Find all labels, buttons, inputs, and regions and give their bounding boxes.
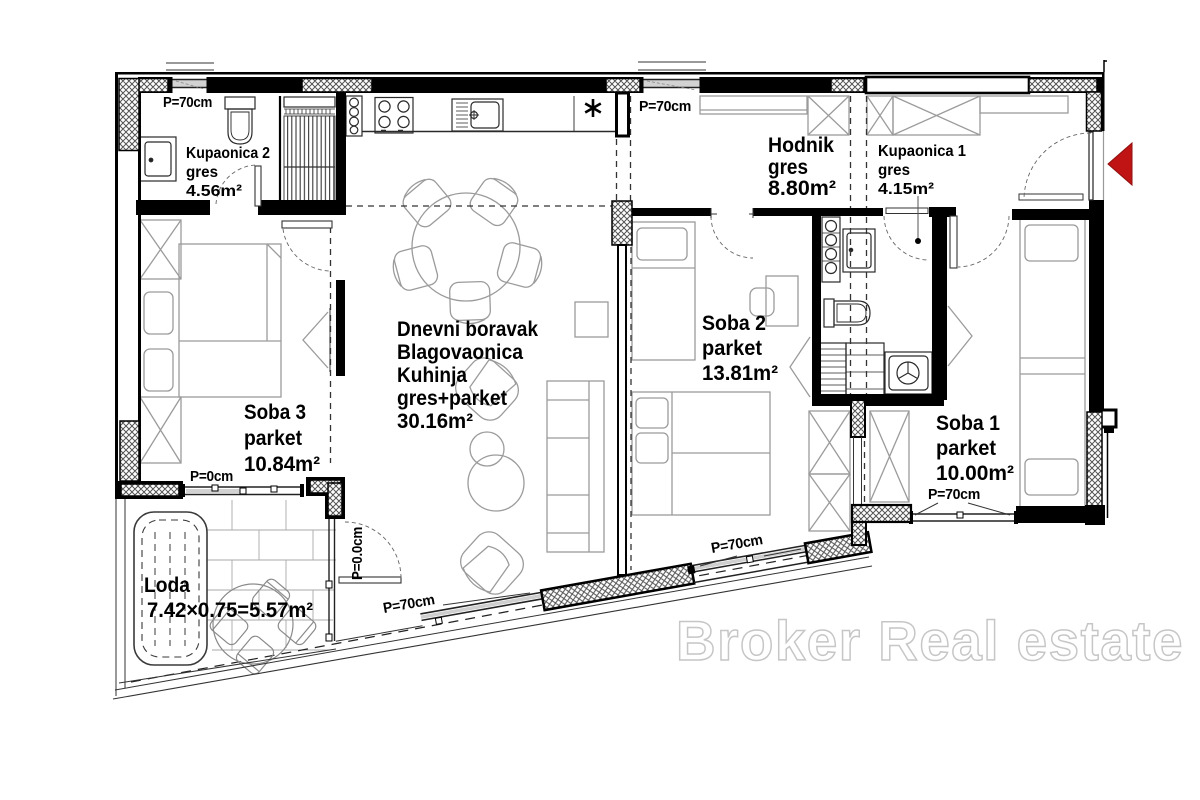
svg-text:parket: parket: [702, 337, 762, 360]
svg-text:Soba 2: Soba 2: [702, 312, 766, 335]
svg-text:10.00m²: 10.00m²: [936, 462, 1014, 485]
svg-text:P=70cm: P=70cm: [163, 95, 212, 111]
svg-text:parket: parket: [936, 437, 996, 460]
svg-text:7.42×0.75=5.57m²: 7.42×0.75=5.57m²: [147, 599, 313, 622]
svg-text:gres+parket: gres+parket: [397, 387, 507, 410]
svg-text:13.81m²: 13.81m²: [702, 362, 778, 385]
svg-text:Blagovaonica: Blagovaonica: [397, 341, 523, 364]
svg-text:P=70cm: P=70cm: [710, 532, 764, 557]
svg-text:P=70cm: P=70cm: [639, 99, 691, 115]
svg-text:Kupaonica 2: Kupaonica 2: [186, 145, 270, 162]
svg-text:P=70cm: P=70cm: [928, 487, 980, 503]
svg-text:gres: gres: [768, 156, 808, 179]
svg-text:30.16m²: 30.16m²: [397, 410, 473, 433]
svg-text:gres: gres: [186, 164, 218, 181]
svg-text:P=0cm: P=0cm: [190, 469, 233, 485]
svg-text:Broker Real estate: Broker Real estate: [676, 609, 1184, 672]
svg-text:gres: gres: [878, 162, 910, 179]
svg-text:Kuhinja: Kuhinja: [397, 364, 467, 387]
svg-text:Loda: Loda: [144, 574, 190, 597]
svg-text:P=0.0cm: P=0.0cm: [350, 527, 366, 580]
svg-text:8.80m²: 8.80m²: [768, 177, 836, 200]
svg-text:Soba 3: Soba 3: [244, 401, 306, 424]
svg-text:Soba 1: Soba 1: [936, 412, 1000, 435]
svg-text:Kupaonica 1: Kupaonica 1: [878, 143, 966, 160]
svg-text:Dnevni boravak: Dnevni boravak: [397, 318, 538, 341]
svg-text:Hodnik: Hodnik: [768, 134, 834, 157]
svg-text:4.15m²: 4.15m²: [878, 181, 934, 198]
svg-text:parket: parket: [244, 427, 302, 450]
svg-text:10.84m²: 10.84m²: [244, 453, 320, 476]
svg-text:4.56m²: 4.56m²: [186, 183, 242, 200]
